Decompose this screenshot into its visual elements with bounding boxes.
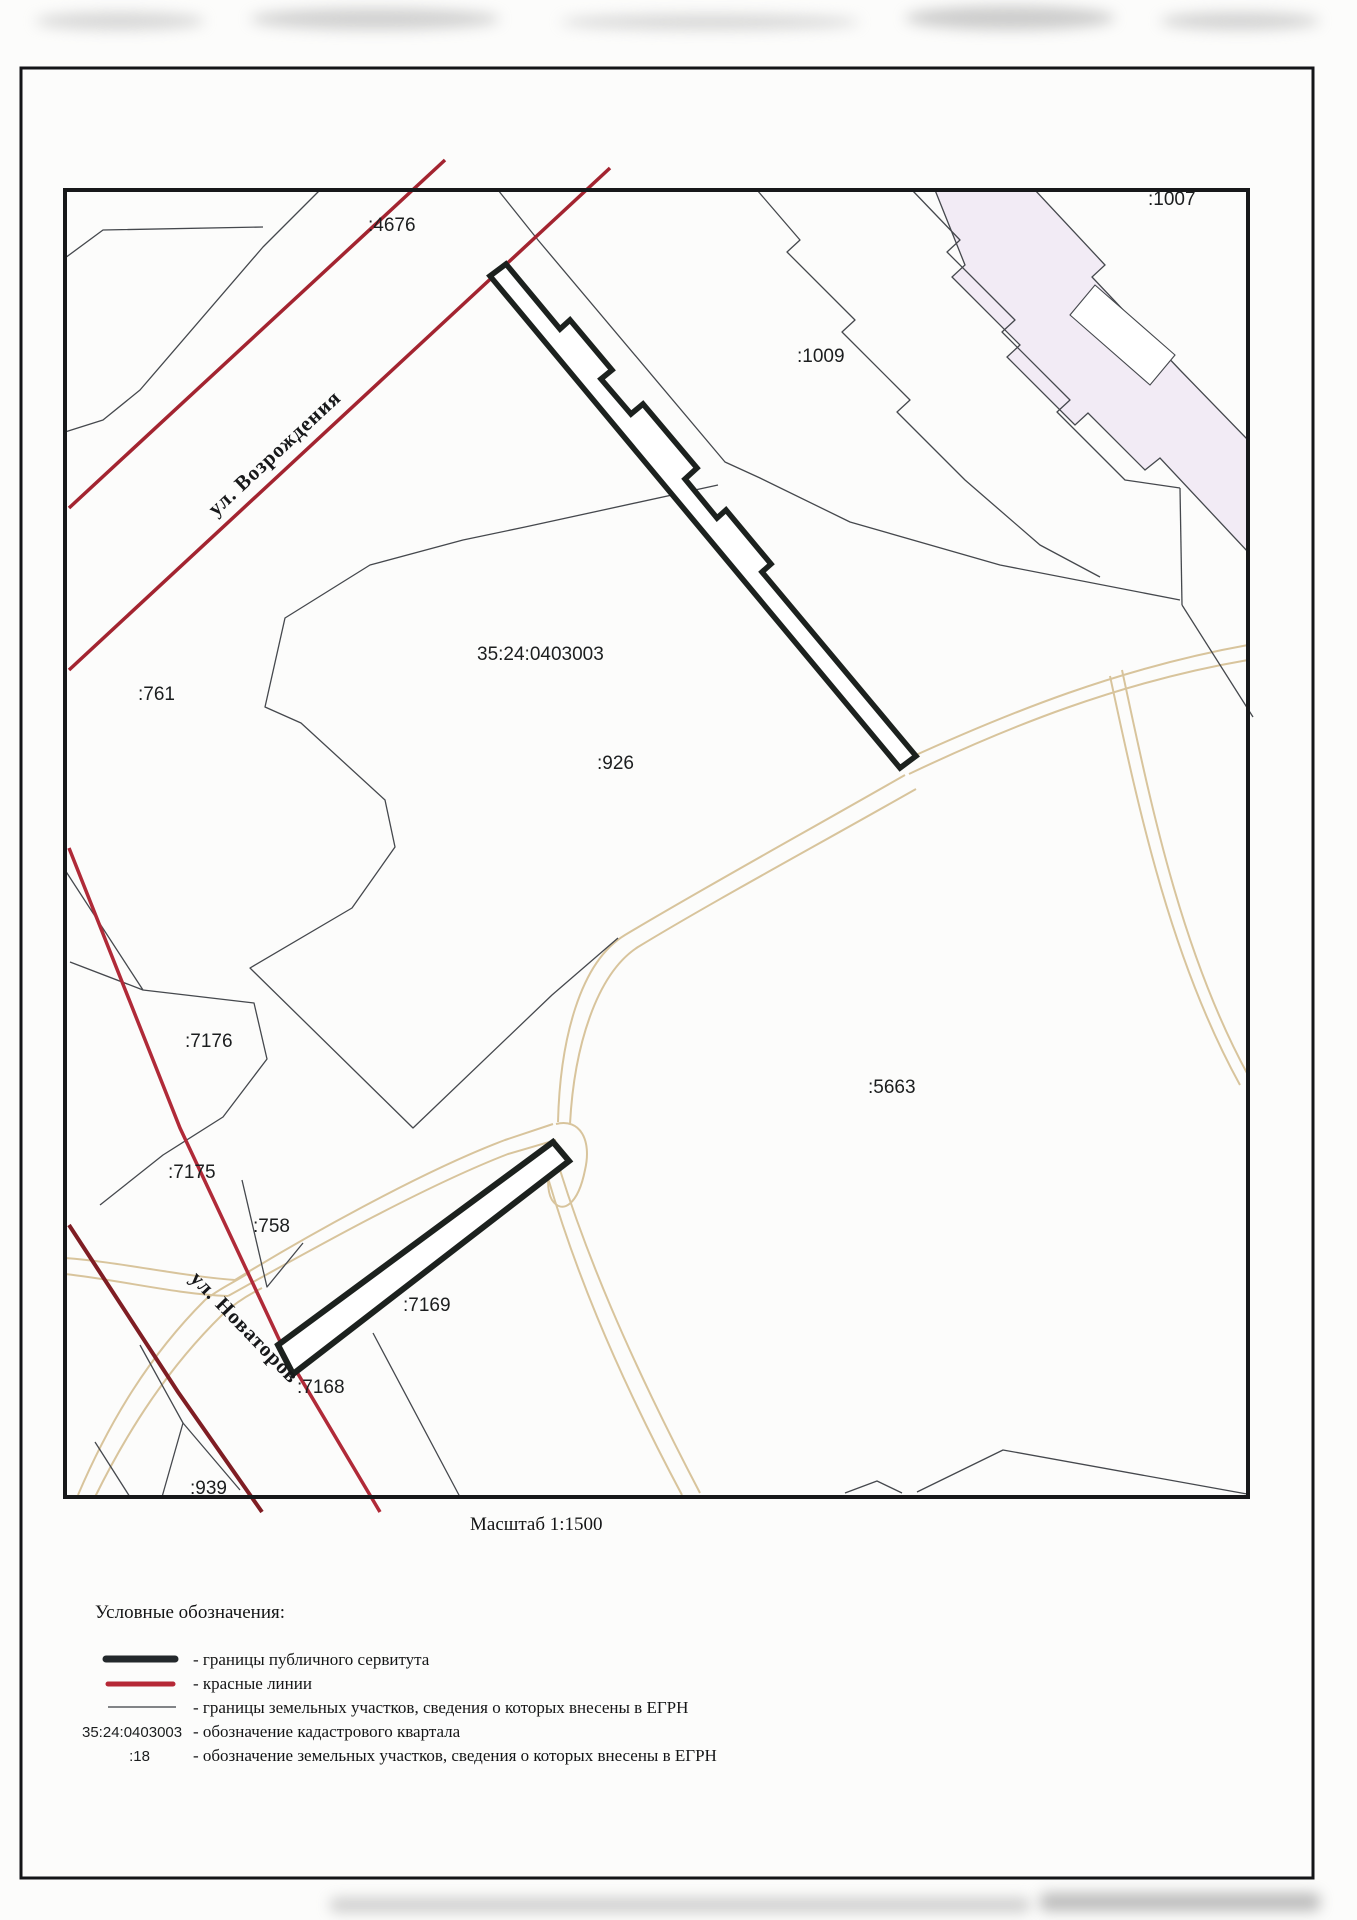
label-parcel-939: :939 [190, 1478, 227, 1499]
legend-item-parcel-code: - обозначение земельных участков, сведен… [193, 1746, 717, 1765]
legend-item-parcel-borders: - границы земельных участков, сведения о… [193, 1698, 688, 1717]
legend-item-servitude: - границы публичного сервитута [193, 1650, 430, 1669]
scale-label: Масштаб 1:1500 [470, 1514, 603, 1535]
label-parcel-761: :761 [138, 684, 175, 705]
legend-swatch-quarter-code: 35:24:0403003 [82, 1724, 182, 1741]
scanned-document-page: :1007 :4676 :1009 :761 35:24:0403003 :92… [0, 0, 1357, 1920]
label-parcel-926: :926 [597, 753, 634, 774]
building-area [935, 190, 1248, 552]
street-label-vozrozhdeniya: ул. Возрождения [203, 385, 346, 520]
label-cadastral-quarter: 35:24:0403003 [477, 644, 604, 665]
public-servitude-boundaries [278, 264, 916, 1374]
cadastral-map: :1007 :4676 :1009 :761 35:24:0403003 :92… [0, 0, 1357, 1920]
label-parcel-7175: :7175 [168, 1162, 216, 1183]
legend-title: Условные обозначения: [95, 1602, 285, 1623]
label-parcel-7168: :7168 [297, 1377, 345, 1398]
legend-item-red-lines: - красные линии [193, 1674, 312, 1693]
label-parcel-758: :758 [253, 1216, 290, 1237]
red-line-novatorov-left [69, 1225, 262, 1512]
red-line-vozrozhdeniya-right [69, 168, 610, 670]
legend-item-quarter-code: - обозначение кадастрового квартала [193, 1722, 461, 1741]
road-lines [65, 645, 1248, 1497]
label-parcel-1007: :1007 [1148, 189, 1196, 210]
label-parcel-5663: :5663 [868, 1077, 916, 1098]
label-parcel-7176: :7176 [185, 1031, 233, 1052]
public-servitude-upper [490, 264, 916, 768]
label-parcel-4676: :4676 [368, 215, 416, 236]
street-label-novatorov: ул. Новаторов [186, 1266, 305, 1388]
label-parcel-1009: :1009 [797, 346, 845, 367]
legend: Условные обозначения: - границы публично… [82, 1602, 717, 1765]
legend-swatch-parcel-code: :18 [129, 1748, 150, 1765]
label-parcel-7169: :7169 [403, 1295, 451, 1316]
